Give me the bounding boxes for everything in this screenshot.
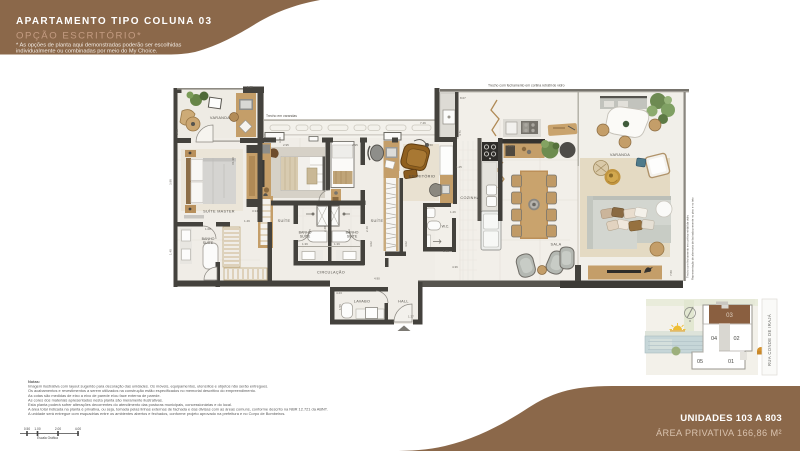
svg-text:1.56: 1.56 <box>338 304 342 310</box>
svg-text:4.02: 4.02 <box>404 241 408 247</box>
svg-text:1.00: 1.00 <box>34 427 40 431</box>
svg-text:3.08: 3.08 <box>278 137 282 143</box>
svg-text:0.50: 0.50 <box>24 427 30 431</box>
svg-text:7.80: 7.80 <box>669 270 673 276</box>
svg-text:SALA: SALA <box>551 243 562 247</box>
svg-text:4.00: 4.00 <box>75 427 81 431</box>
svg-text:05: 05 <box>697 359 703 365</box>
svg-text:1.92: 1.92 <box>247 85 253 89</box>
svg-text:1.49: 1.49 <box>244 219 250 223</box>
svg-text:COZINHA: COZINHA <box>460 196 479 200</box>
svg-text:Escala Gráfica: Escala Gráfica <box>37 436 58 440</box>
svg-text:1.39: 1.39 <box>334 242 340 246</box>
svg-text:3.98: 3.98 <box>169 179 173 185</box>
svg-text:1.40: 1.40 <box>169 249 173 255</box>
svg-text:UNIDADES 103 A 803: UNIDADES 103 A 803 <box>680 413 782 424</box>
svg-text:W.C.: W.C. <box>442 225 450 229</box>
svg-text:Trecho com fechamento em corti: Trecho com fechamento em cortina retráti… <box>686 214 690 278</box>
svg-text:3.23: 3.23 <box>508 144 514 148</box>
svg-text:4.71: 4.71 <box>458 130 462 136</box>
svg-text:BANHOSUÍTE: BANHOSUÍTE <box>346 231 359 239</box>
svg-text:2.95: 2.95 <box>352 143 358 147</box>
svg-text:1.26: 1.26 <box>450 210 456 214</box>
svg-text:SUÍTE: SUÍTE <box>371 219 384 223</box>
svg-text:4.02: 4.02 <box>369 241 373 247</box>
svg-text:ÁREA PRIVATIVA 166,86 M²: ÁREA PRIVATIVA 166,86 M² <box>656 428 782 438</box>
svg-text:7.46: 7.46 <box>420 121 426 125</box>
svg-text:SUÍTE: SUÍTE <box>278 219 291 223</box>
svg-text:4.36: 4.36 <box>452 265 458 269</box>
svg-text:3.50: 3.50 <box>427 143 433 147</box>
svg-text:SUÍTE MASTER: SUÍTE MASTER <box>203 210 235 214</box>
svg-text:2.40: 2.40 <box>365 226 369 232</box>
svg-text:04: 04 <box>711 336 717 342</box>
svg-text:1.08: 1.08 <box>205 227 211 231</box>
svg-text:8.07: 8.07 <box>460 96 466 100</box>
svg-text:1.39: 1.39 <box>302 242 308 246</box>
svg-text:Representação de alvenaria de: Representação de alvenaria de fachada pr… <box>691 197 695 280</box>
svg-text:APARTAMENTO TIPO COLUNA 03: APARTAMENTO TIPO COLUNA 03 <box>16 16 212 27</box>
svg-text:RUA CONDE DE IRAJÁ: RUA CONDE DE IRAJÁ <box>767 314 772 366</box>
svg-text:BANHOSUÍTE: BANHOSUÍTE <box>299 231 312 239</box>
svg-text:2.03: 2.03 <box>175 129 179 135</box>
svg-text:1.25: 1.25 <box>456 165 462 169</box>
svg-text:V1.90: V1.90 <box>231 157 235 165</box>
svg-text:02: 02 <box>733 336 739 342</box>
svg-text:CIRCULAÇÃO: CIRCULAÇÃO <box>317 270 345 275</box>
svg-text:03: 03 <box>726 313 733 319</box>
svg-text:OPÇÃO ESCRITÓRIO*: OPÇÃO ESCRITÓRIO* <box>16 31 142 42</box>
svg-text:LAVABO: LAVABO <box>354 300 370 304</box>
svg-text:2.00: 2.00 <box>55 427 61 431</box>
svg-text:BANHOSUÍTE: BANHOSUÍTE <box>202 237 215 245</box>
svg-text:individualmente ou combinadas: individualmente ou combinadas por meio d… <box>16 48 158 54</box>
svg-text:Trecho com fechamento em corti: Trecho com fechamento em cortina retráti… <box>488 84 565 88</box>
svg-text:01: 01 <box>728 359 734 365</box>
svg-text:2.40: 2.40 <box>323 226 327 232</box>
svg-text:4.23: 4.23 <box>336 291 342 295</box>
svg-text:VARANDA: VARANDA <box>610 153 630 157</box>
svg-text:HALL: HALL <box>398 300 409 304</box>
svg-text:2.95: 2.95 <box>283 143 289 147</box>
svg-text:VARANDA: VARANDA <box>210 116 230 120</box>
svg-text:1.37: 1.37 <box>408 315 414 319</box>
svg-text:4.90: 4.90 <box>374 277 380 281</box>
svg-text:ESCRITÓRIO: ESCRITÓRIO <box>409 174 436 179</box>
svg-text:3.34: 3.34 <box>252 209 258 213</box>
svg-text:Trecho em varandas: Trecho em varandas <box>266 114 297 118</box>
svg-text:1.01: 1.01 <box>443 249 449 253</box>
svg-text:A unidade será entregue com es: A unidade será entregue com esquadrias e… <box>28 411 285 416</box>
